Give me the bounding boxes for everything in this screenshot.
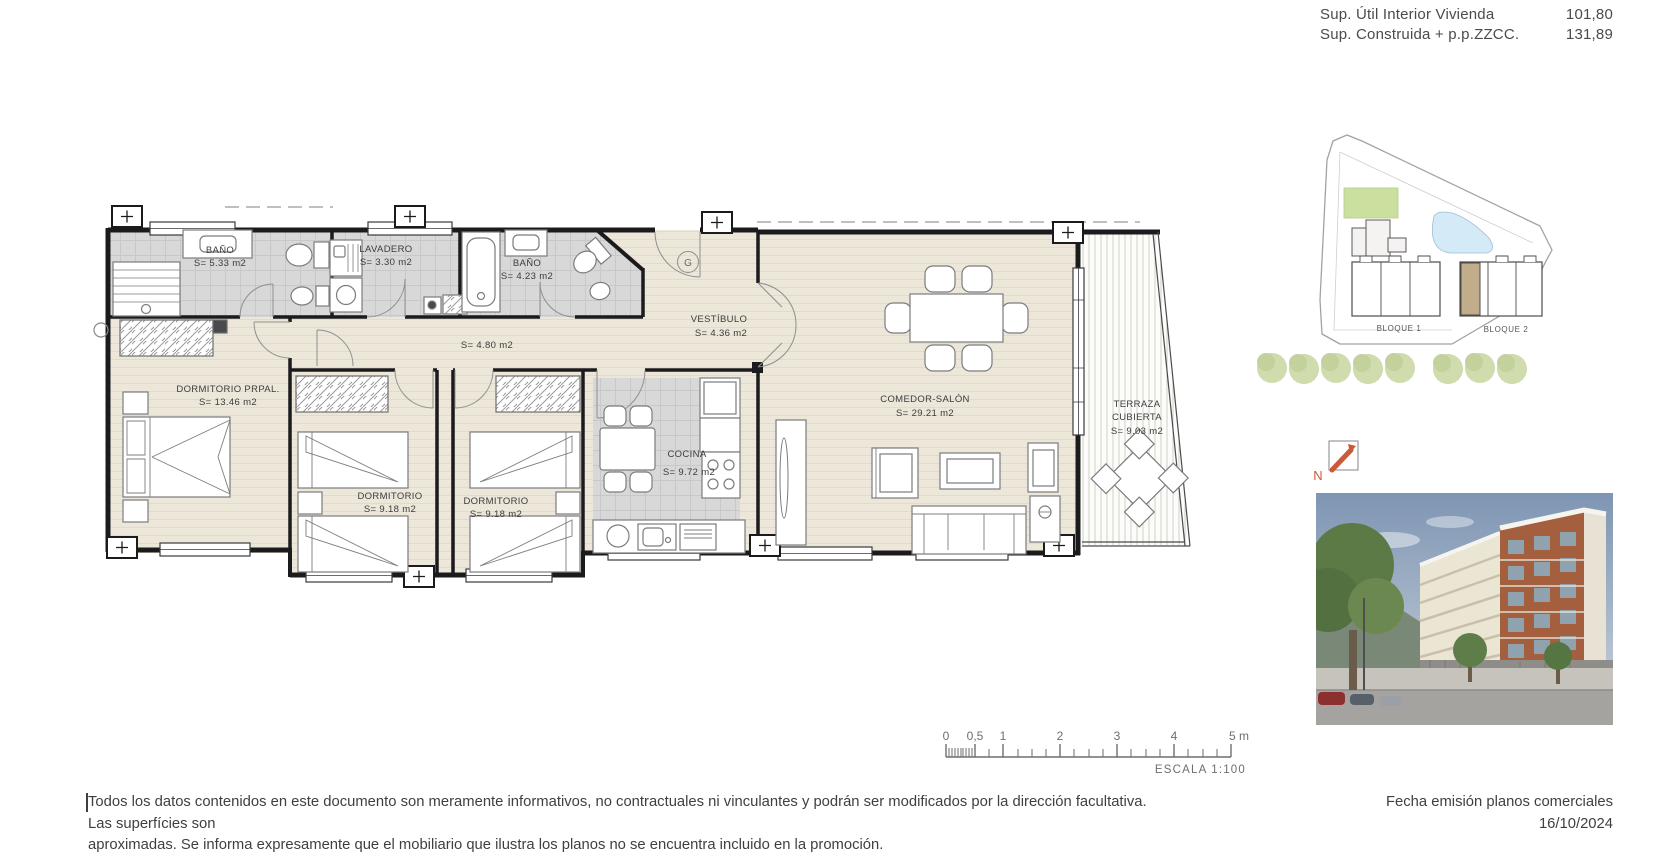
room-area-vestibulo: S= 4.36 m2 (695, 328, 747, 339)
floor-plan: G BAÑO S= 5.33 m2 LAVADERO S= 3.30 m2 BA… (94, 206, 1190, 587)
site-bloque2-label: BLOQUE 2 (1484, 325, 1529, 334)
room-area-bano1: S= 5.33 m2 (194, 258, 246, 269)
north-arrow: N (1313, 441, 1358, 483)
issue-date-label: Fecha emisión planos comerciales (1386, 792, 1613, 814)
room-label-bano1: BAÑO (206, 245, 234, 256)
disclaimer: Todos los datos contenidos en este docum… (88, 792, 1173, 857)
site-garden (1344, 188, 1398, 218)
room-area-pasillo: S= 4.80 m2 (461, 340, 513, 351)
room-area-bano2: S= 4.23 m2 (501, 271, 553, 282)
scale-tick-2: 2 (1057, 729, 1064, 743)
building-photo (1296, 493, 1613, 725)
site-trees (1257, 353, 1527, 384)
room-label-dormP: DORMITORIO PRPAL. (176, 384, 279, 395)
issue-date-block: Fecha emisión planos comerciales 16/10/2… (1386, 792, 1613, 835)
room-area-dorm2: S= 9.18 m2 (364, 504, 416, 515)
room-area-cocina: S= 9.72 m2 (663, 467, 715, 478)
room-area-comedor: S= 29.21 m2 (896, 408, 954, 419)
north-label: N (1313, 468, 1322, 483)
room-label-comedor: COMEDOR-SALÓN (880, 394, 970, 405)
room-label-dorm3: DORMITORIO (463, 496, 528, 507)
drawing-layer: G BAÑO S= 5.33 m2 LAVADERO S= 3.30 m2 BA… (0, 0, 1659, 868)
overhang-dashed-line (225, 207, 1140, 222)
site-pool (1432, 212, 1492, 253)
scale-tick-05: 0,5 (967, 729, 984, 743)
plan-document-page: Sup. Útil Interior Vivienda 101,80 Sup. … (0, 0, 1659, 868)
room-area-lavadero: S= 3.30 m2 (360, 257, 412, 268)
scale-fine-ticks (949, 748, 1217, 757)
room-area-dorm3: S= 9.18 m2 (470, 509, 522, 520)
scale-escala-label: ESCALA 1:100 (1155, 764, 1246, 776)
room-label-bano2: BAÑO (513, 258, 541, 269)
scale-tick-1: 1 (1000, 729, 1007, 743)
issue-date-value: 16/10/2024 (1386, 814, 1613, 836)
scale-tick-5m: 5 m (1229, 729, 1249, 743)
scale-tick-3: 3 (1114, 729, 1121, 743)
room-label-terraza-2: CUBIERTA (1112, 412, 1162, 423)
scale-bar: 0 0,5 1 2 3 4 5 m ESCALA 1:100 (943, 729, 1249, 776)
photo-sidewalk (1316, 668, 1613, 692)
room-label-vestibulo: VESTÍBULO (691, 314, 747, 325)
site-plan: BLOQUE 1 BLOQUE 2 (1257, 135, 1552, 384)
disclaimer-line-2: aproximadas. Se informa expresamente que… (88, 835, 1173, 857)
site-bloque1-footprint (1352, 256, 1440, 316)
site-highlighted-unit (1461, 263, 1480, 315)
north-arrow-needle (1332, 450, 1351, 470)
site-core-building (1352, 220, 1406, 256)
disclaimer-line-1: Todos los datos contenidos en este docum… (88, 792, 1173, 835)
room-label-terraza-1: TERRAZA (1114, 399, 1161, 410)
room-area-terraza: S= 9.03 m2 (1111, 426, 1163, 437)
terrace-glazing (1073, 268, 1084, 435)
site-bloque1-label: BLOQUE 1 (1377, 324, 1422, 333)
entry-symbol-text: G (684, 258, 692, 269)
scale-tick-0: 0 (943, 729, 950, 743)
room-area-dormP: S= 13.46 m2 (199, 397, 257, 408)
room-label-lavadero: LAVADERO (359, 244, 412, 255)
scale-tick-4: 4 (1171, 729, 1178, 743)
room-label-dorm2: DORMITORIO (357, 491, 422, 502)
room-label-cocina: COCINA (667, 449, 706, 460)
